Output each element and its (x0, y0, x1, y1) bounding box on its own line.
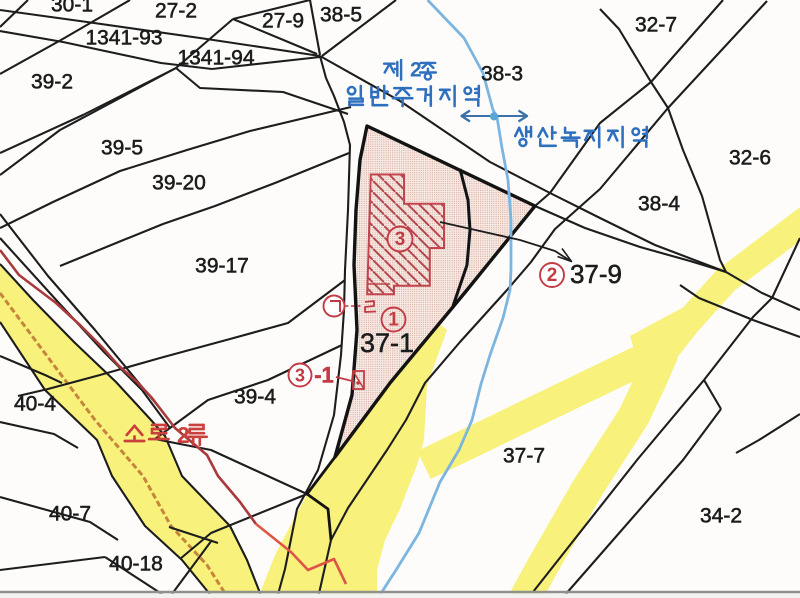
svg-text:39-5: 39-5 (101, 137, 143, 160)
svg-text:32-6: 32-6 (729, 147, 771, 170)
svg-text:30-1: 30-1 (51, 0, 93, 17)
svg-text:3: 3 (395, 229, 406, 250)
svg-text:-1: -1 (314, 363, 334, 388)
svg-text:3: 3 (295, 366, 305, 386)
svg-text:37-7: 37-7 (503, 445, 545, 468)
svg-text:2: 2 (177, 422, 190, 448)
svg-text:27-2: 27-2 (155, 0, 197, 23)
svg-text:32-7: 32-7 (635, 14, 677, 37)
svg-text:40-4: 40-4 (14, 393, 56, 416)
svg-text:38-4: 38-4 (638, 193, 680, 216)
svg-text:39-17: 39-17 (195, 255, 249, 278)
svg-text:38-3: 38-3 (481, 63, 523, 86)
svg-text:1341-93: 1341-93 (85, 27, 162, 50)
svg-text:40-18: 40-18 (109, 553, 163, 576)
svg-text:1341-94: 1341-94 (177, 47, 254, 70)
svg-text:40-7: 40-7 (49, 503, 91, 526)
svg-text:27-9: 27-9 (262, 10, 304, 33)
svg-text:39-4: 39-4 (234, 386, 276, 409)
svg-text:1: 1 (388, 310, 399, 331)
svg-text:34-2: 34-2 (700, 505, 742, 528)
svg-text:39-20: 39-20 (152, 172, 206, 195)
svg-text:37-1: 37-1 (360, 328, 414, 358)
svg-text:39-2: 39-2 (31, 71, 73, 94)
svg-text:2: 2 (547, 265, 558, 286)
svg-text:38-5: 38-5 (320, 4, 362, 27)
svg-text:37-9: 37-9 (570, 259, 622, 289)
